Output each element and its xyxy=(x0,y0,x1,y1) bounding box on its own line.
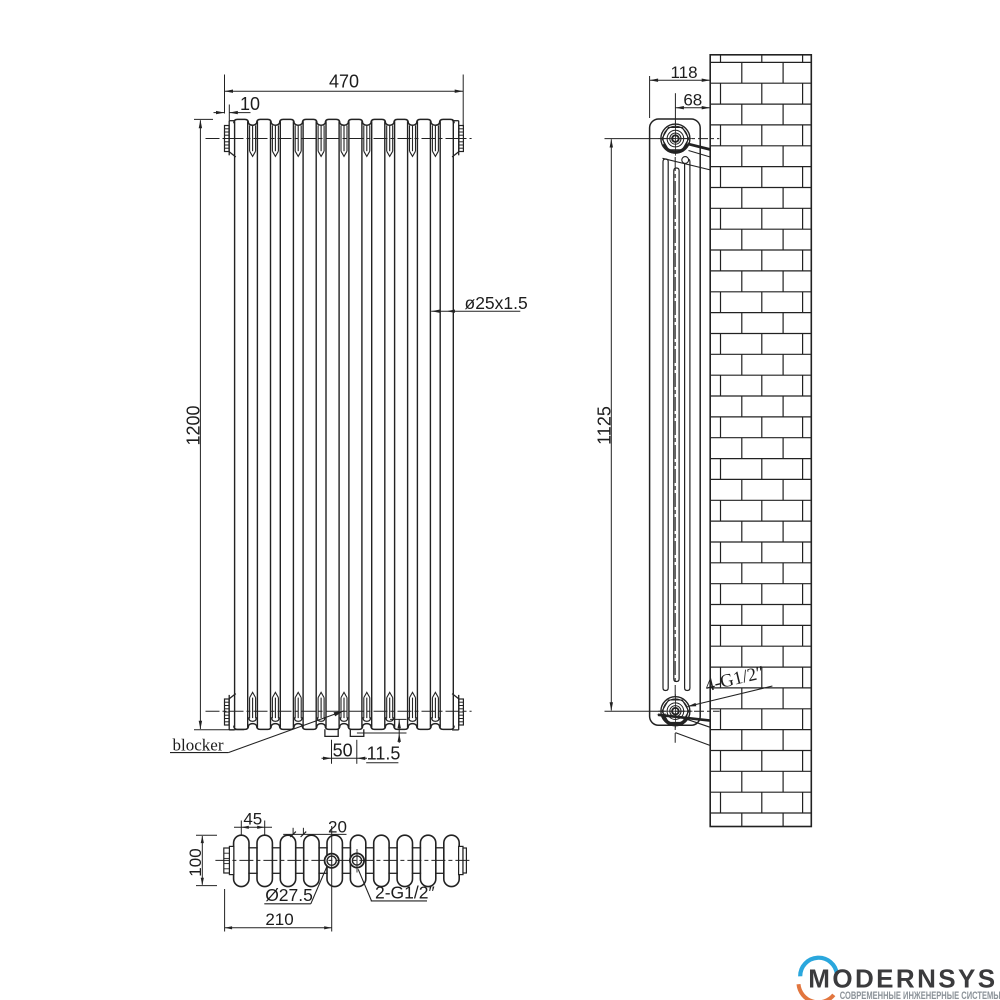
svg-text:20: 20 xyxy=(328,817,347,836)
svg-text:118: 118 xyxy=(670,63,697,82)
svg-text:470: 470 xyxy=(329,71,359,91)
svg-text:Ø27.5: Ø27.5 xyxy=(265,885,313,905)
svg-text:45: 45 xyxy=(243,810,262,829)
svg-text:2-G1/2″: 2-G1/2″ xyxy=(375,882,435,902)
svg-text:68: 68 xyxy=(683,90,702,109)
svg-text:СОВРЕМЕННЫЕ ИНЖЕНЕРНЫЕ СИСТЕМЫ: СОВРЕМЕННЫЕ ИНЖЕНЕРНЫЕ СИСТЕМЫ xyxy=(840,990,1000,1000)
svg-text:1125: 1125 xyxy=(594,406,614,445)
svg-text:MODERNSYS: MODERNSYS xyxy=(808,964,997,994)
svg-text:1200: 1200 xyxy=(184,405,204,445)
svg-text:10: 10 xyxy=(240,94,260,114)
svg-text:50: 50 xyxy=(333,741,353,761)
svg-text:11.5: 11.5 xyxy=(367,743,401,763)
svg-text:blocker: blocker xyxy=(173,735,224,754)
svg-text:210: 210 xyxy=(265,910,293,929)
svg-text:ø25x1.5: ø25x1.5 xyxy=(465,293,528,313)
svg-text:100: 100 xyxy=(186,848,205,876)
